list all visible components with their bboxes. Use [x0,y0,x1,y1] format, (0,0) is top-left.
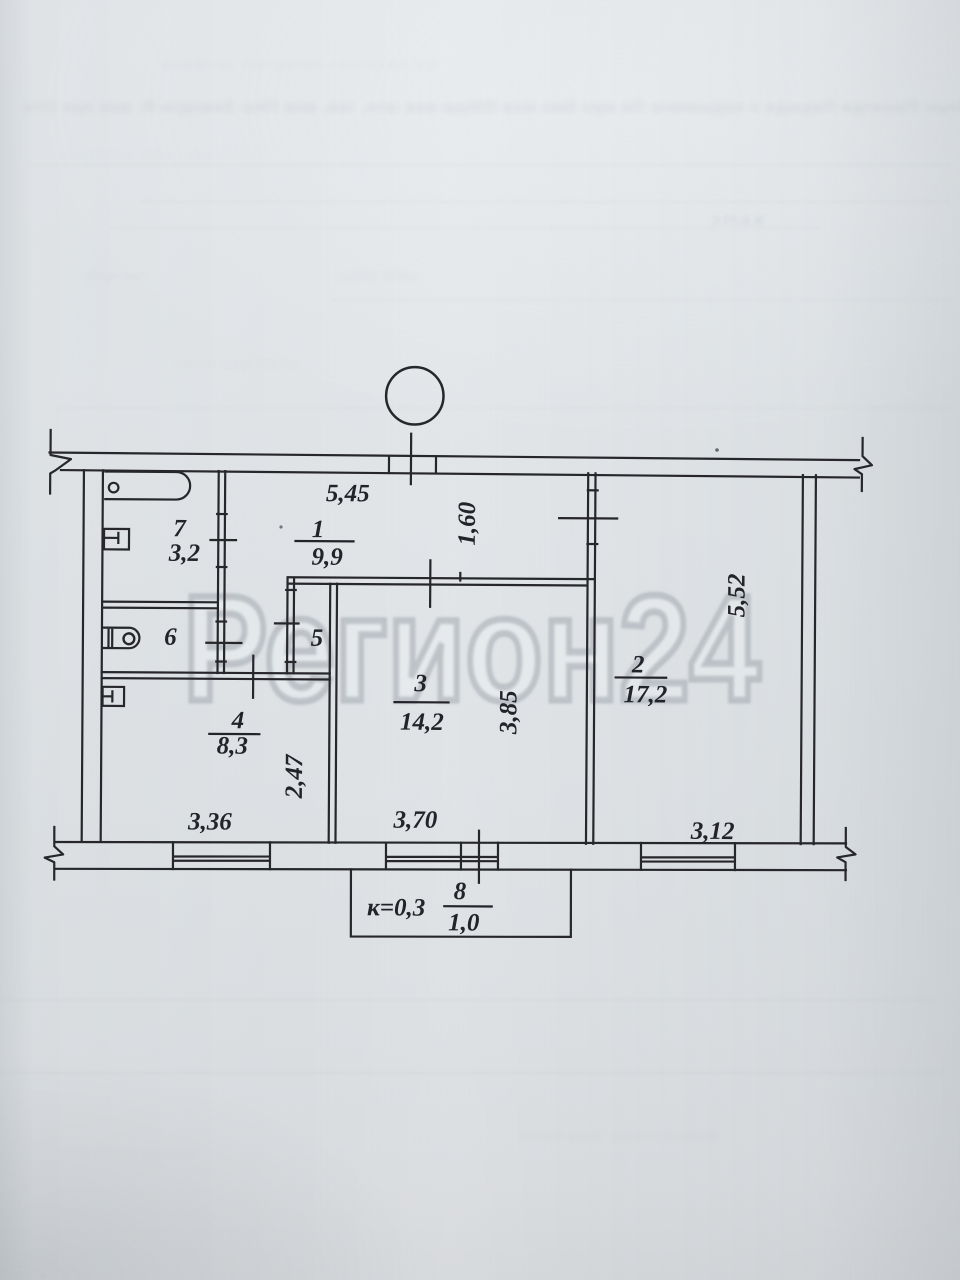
svg-text:3,70: 3,70 [392,807,437,834]
svg-text:Регион24: Регион24 [183,564,760,732]
svg-text:3,85: 3,85 [495,690,522,735]
svg-text:8: 8 [454,878,467,905]
svg-text:17,2: 17,2 [623,681,667,708]
svg-text:14,2: 14,2 [400,709,444,736]
svg-text:4: 4 [231,707,245,734]
svg-text:5,45: 5,45 [326,480,370,507]
svg-text:к=0,3: к=0,3 [367,894,425,921]
svg-text:9,9: 9,9 [312,544,344,571]
svg-text:6: 6 [164,624,177,651]
svg-text:1,60: 1,60 [454,501,481,545]
svg-text:8,3: 8,3 [217,733,248,760]
svg-text:3,36: 3,36 [187,808,232,835]
svg-text:2: 2 [631,651,645,678]
svg-text:2,47: 2,47 [281,753,308,799]
svg-text:1: 1 [312,516,325,543]
svg-text:7: 7 [173,515,187,542]
svg-text:3,2: 3,2 [168,540,200,567]
svg-text:3: 3 [413,670,427,697]
svg-text:1,0: 1,0 [448,909,480,936]
svg-text:5: 5 [311,625,324,652]
svg-text:5,52: 5,52 [723,573,750,617]
svg-text:3,12: 3,12 [690,818,735,845]
